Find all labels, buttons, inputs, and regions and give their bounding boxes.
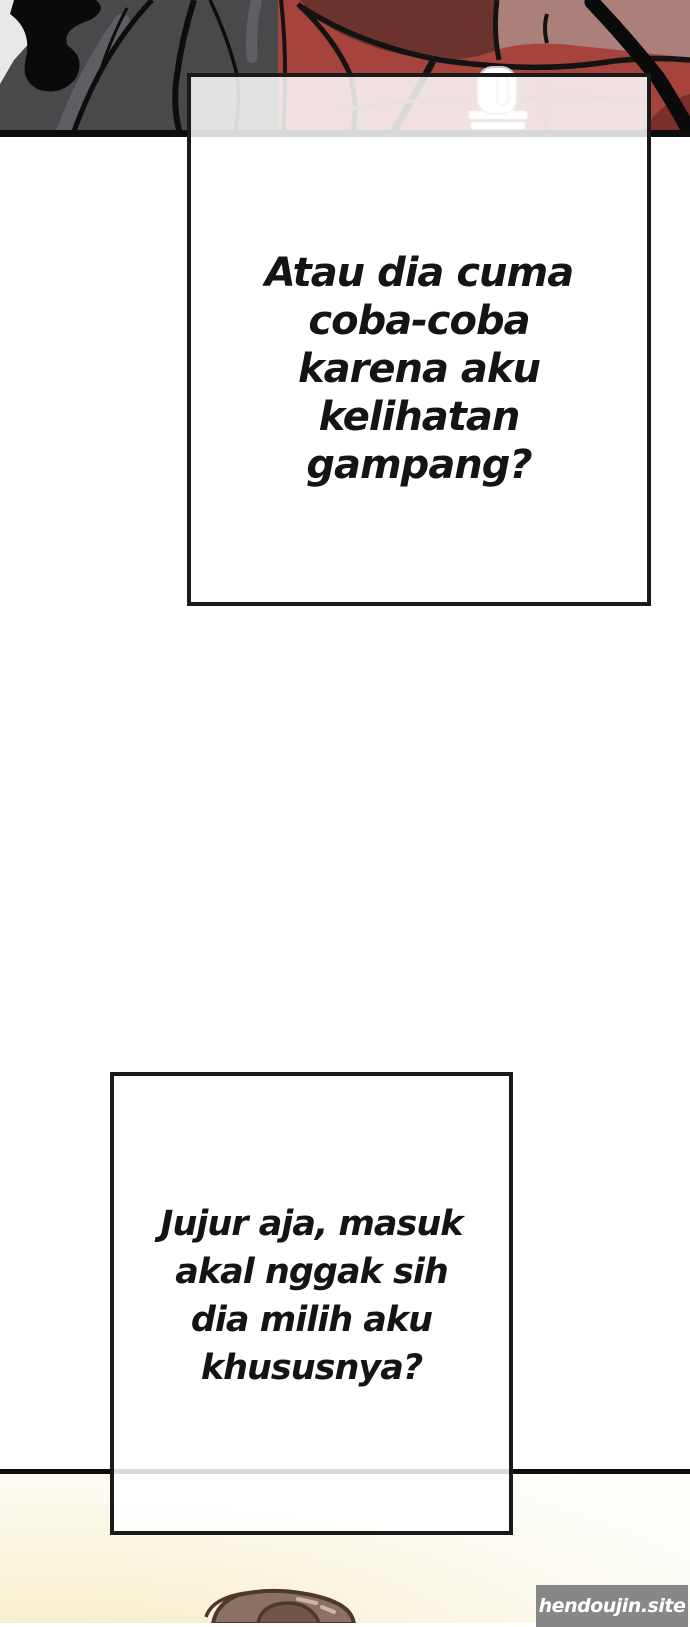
bubble-text-line: akal nggak sih — [114, 1248, 509, 1296]
bubble-text-line: Atau dia cuma — [191, 249, 647, 297]
bubble-text-line: gampang? — [191, 441, 647, 489]
speech-bubble-2: Jujur aja, masuk akal nggak sih dia mili… — [110, 1072, 513, 1535]
watermark-text: hendoujin.site — [539, 1595, 686, 1617]
bubble-text-line: khususnya? — [114, 1344, 509, 1392]
bubble-text-line: karena aku — [191, 345, 647, 393]
bubble-text-line: kelihatan — [191, 393, 647, 441]
bubble-text-line: coba-coba — [191, 297, 647, 345]
speech-bubble-1: Atau dia cuma coba-coba karena aku kelih… — [187, 73, 651, 606]
watermark-badge: hendoujin.site — [536, 1585, 688, 1627]
bubble-text-line: Jujur aja, masuk — [114, 1200, 509, 1248]
bubble-text-line: dia milih aku — [114, 1296, 509, 1344]
character-head-art — [185, 1586, 370, 1623]
